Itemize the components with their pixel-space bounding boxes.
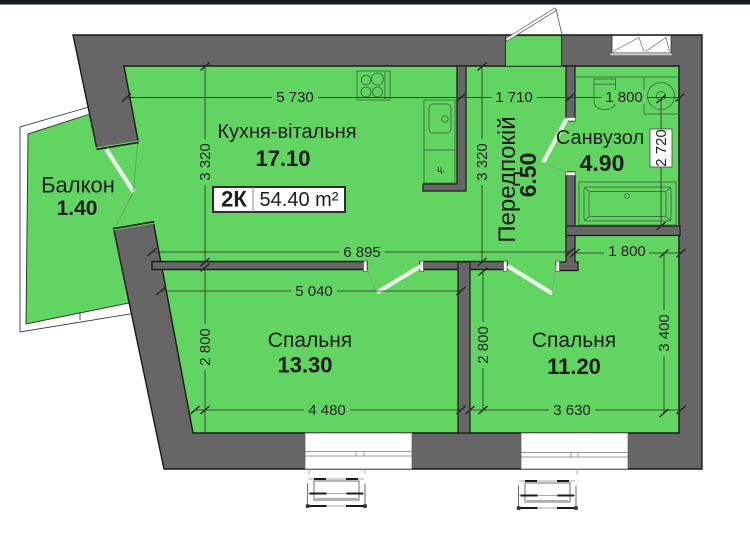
svg-text:1.40: 1.40 [57, 197, 98, 220]
svg-text:54.40 m²: 54.40 m² [260, 189, 339, 211]
svg-text:13.30: 13.30 [277, 353, 332, 378]
svg-text:Кухня-вітальня: Кухня-вітальня [217, 121, 356, 143]
svg-text:1 800: 1 800 [605, 89, 643, 106]
svg-text:4 480: 4 480 [308, 402, 346, 419]
svg-text:2 720: 2 720 [653, 129, 670, 167]
svg-text:17.10: 17.10 [255, 146, 310, 171]
svg-text:Балкон: Балкон [41, 173, 115, 198]
svg-text:3 320: 3 320 [197, 143, 214, 181]
svg-text:2 800: 2 800 [475, 326, 492, 364]
svg-text:ц.: ц. [437, 164, 445, 174]
svg-text:2 800: 2 800 [197, 328, 214, 366]
svg-text:3 320: 3 320 [474, 143, 491, 181]
svg-text:4.90: 4.90 [580, 150, 625, 176]
svg-text:6.50: 6.50 [515, 153, 541, 198]
svg-text:Спальня: Спальня [532, 329, 616, 352]
svg-text:Спальня: Спальня [268, 329, 352, 352]
svg-text:3 400: 3 400 [656, 314, 673, 352]
svg-text:Санвузол: Санвузол [556, 127, 644, 149]
svg-text:11.20: 11.20 [547, 354, 601, 379]
svg-text:5 040: 5 040 [295, 283, 333, 300]
svg-text:5 730: 5 730 [276, 89, 314, 106]
svg-text:1 710: 1 710 [495, 89, 533, 106]
svg-text:3 630: 3 630 [553, 402, 591, 419]
svg-text:6 895: 6 895 [343, 244, 381, 261]
svg-text:1 800: 1 800 [608, 243, 646, 260]
svg-text:2К: 2К [221, 187, 247, 212]
